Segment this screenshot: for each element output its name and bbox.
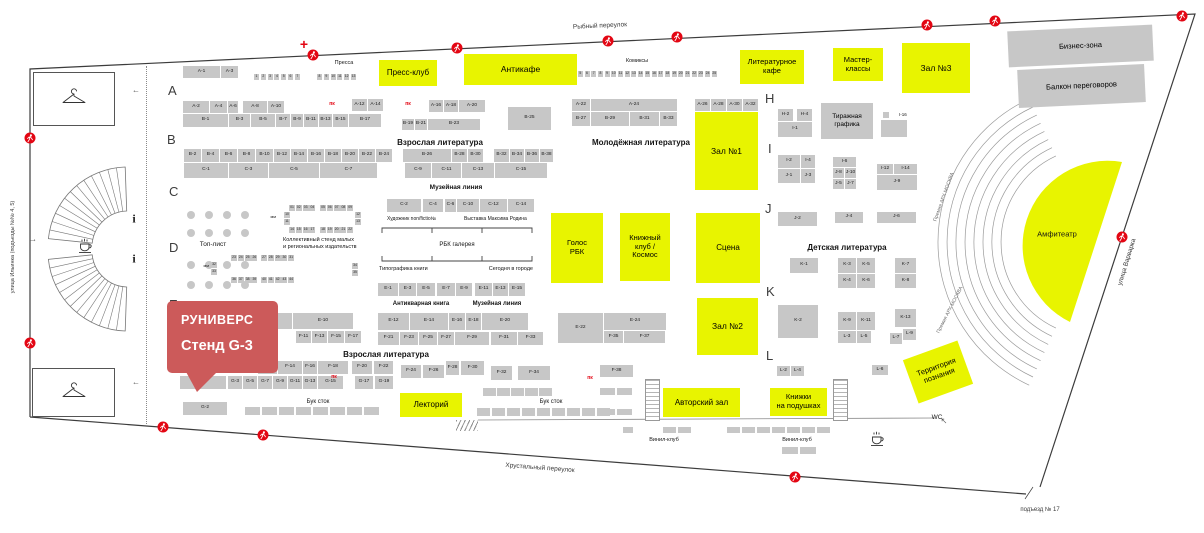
fire-hydrant-label: пк bbox=[587, 375, 593, 381]
amphitheater-seating-arc bbox=[947, 107, 1033, 377]
booth-c-15: C-15 bbox=[495, 163, 547, 178]
section-label: и региональных издательств bbox=[283, 244, 357, 250]
section-label: Комиксы bbox=[626, 58, 648, 64]
comics-stand-18: 18 bbox=[665, 71, 670, 77]
booth-a-8: A-8 bbox=[243, 101, 267, 113]
visitor-path-guide bbox=[146, 66, 147, 424]
booth-c-11: C-11 bbox=[432, 163, 461, 178]
book-stock-shelf bbox=[347, 407, 362, 415]
booth-e-11: E-11 bbox=[475, 283, 492, 296]
booth-h-2: H-2 bbox=[778, 109, 793, 121]
collective-stand-14: 14 bbox=[289, 227, 295, 233]
collective-stand-28: 28 bbox=[268, 255, 274, 261]
book-stock-shelf bbox=[522, 408, 535, 416]
press-stand-8: 8 bbox=[317, 74, 322, 80]
booth-c-13: C-13 bbox=[462, 163, 494, 178]
seating-dot bbox=[223, 229, 231, 237]
booth-b-9: B-9 bbox=[291, 114, 303, 127]
collective-stand-43: 43 bbox=[281, 277, 287, 283]
comics-stand-6: 6 bbox=[585, 71, 590, 77]
emergency-exit-icon bbox=[452, 43, 463, 54]
collective-stand-17: 17 bbox=[309, 227, 315, 233]
zone-author-hall: Авторский зал bbox=[663, 388, 740, 417]
booth-b-11: B-11 bbox=[304, 114, 318, 127]
book-stock-shelf bbox=[279, 407, 294, 415]
booth-c-12: C-12 bbox=[480, 199, 507, 212]
row-letter-c: C bbox=[169, 184, 178, 199]
emergency-exit-icon bbox=[990, 16, 1001, 27]
emergency-exit-icon bbox=[790, 472, 801, 483]
collective-stand-06: 06 bbox=[327, 205, 333, 211]
collective-stand-03: 03 bbox=[303, 205, 309, 211]
book-stock-shelf bbox=[757, 427, 770, 433]
comics-stand-5: 5 bbox=[578, 71, 583, 77]
amphitheater-label: Амфитеатр bbox=[1037, 230, 1077, 239]
comics-stand-20: 20 bbox=[678, 71, 683, 77]
booth-b-32: B-32 bbox=[494, 149, 509, 162]
emergency-exit-icon bbox=[25, 133, 36, 144]
collective-stand-32: 32 bbox=[211, 262, 217, 268]
emergency-exit-icon bbox=[922, 20, 933, 31]
book-stock-shelf bbox=[663, 427, 676, 433]
booth-b-25: B-25 bbox=[508, 107, 551, 130]
section-label: Детская литература bbox=[807, 243, 886, 252]
booth-b-24: B-24 bbox=[376, 149, 392, 162]
escalator bbox=[645, 379, 660, 421]
collective-stand-21: 21 bbox=[340, 227, 346, 233]
booth-b-13: B-13 bbox=[319, 114, 332, 127]
comics-stand-8: 8 bbox=[598, 71, 603, 77]
booth-b-16: B-16 bbox=[308, 149, 324, 162]
booth-b-8: B-8 bbox=[238, 149, 255, 162]
booth-e-14: E-14 bbox=[410, 313, 448, 330]
zone-press-club: Пресс-клуб bbox=[379, 60, 437, 86]
booth-b-36: B-36 bbox=[525, 149, 539, 162]
amphitheater-zone bbox=[1023, 161, 1122, 322]
booth-f-29: F-29 bbox=[455, 332, 489, 345]
booth-l-5: L-5 bbox=[857, 331, 871, 343]
book-stock-shelf bbox=[483, 388, 496, 396]
direction-arrow-icon: → bbox=[29, 235, 37, 244]
booth-f-11: F-11 bbox=[296, 331, 311, 343]
book-stock-shelf bbox=[477, 408, 490, 416]
press-stand-1: 1 bbox=[254, 74, 259, 80]
collective-stand-25: 25 bbox=[245, 255, 251, 261]
booth-e-15: E-15 bbox=[509, 283, 525, 296]
press-stand-2: 2 bbox=[261, 74, 266, 80]
booth-a-6: A-6 bbox=[228, 101, 238, 113]
booth-b-17: B-17 bbox=[349, 114, 381, 127]
booth-f-22: F-22 bbox=[374, 361, 393, 374]
booth-f-26: F-26 bbox=[423, 365, 444, 378]
seating-dot bbox=[187, 211, 195, 219]
booth-g-5: G-5 bbox=[243, 376, 257, 389]
booth-b-15: B-15 bbox=[333, 114, 348, 127]
booth-a-4: A-4 bbox=[210, 101, 227, 113]
booth-j-3: J-3 bbox=[801, 169, 815, 183]
booth-i-12: I-12 bbox=[877, 164, 893, 174]
seating-dot bbox=[205, 281, 213, 289]
collective-stand-36: 36 bbox=[231, 277, 237, 283]
booth-f-33: F-33 bbox=[518, 332, 543, 345]
info-point-icon: i bbox=[132, 212, 135, 227]
zone-hall-2: Зал №2 bbox=[697, 298, 758, 355]
comics-stand-19: 19 bbox=[672, 71, 677, 77]
curved-staircase bbox=[48, 167, 126, 243]
booth-c-5: C-5 bbox=[269, 163, 319, 178]
booth-f-14: F-14 bbox=[278, 361, 302, 374]
booth-l-2: L-2 bbox=[777, 366, 790, 376]
booth-j-6: J-6 bbox=[877, 212, 916, 223]
booth-e-10: E-10 bbox=[293, 313, 353, 329]
booth-e-1: E-1 bbox=[378, 283, 398, 296]
booth-e-13: E-13 bbox=[493, 283, 508, 296]
press-stand-3: 3 bbox=[268, 74, 273, 80]
booth-h-4: H-4 bbox=[797, 109, 812, 121]
press-stand-6: 6 bbox=[288, 74, 293, 80]
booth bbox=[278, 313, 292, 329]
booth-b-6: B-6 bbox=[220, 149, 237, 162]
collective-stand-10: 10 bbox=[284, 212, 290, 218]
row-letter-k: K bbox=[766, 284, 775, 299]
book-stock-shelf bbox=[497, 388, 510, 396]
section-label: Музейная линия bbox=[430, 184, 483, 191]
booth-a-10: A-10 bbox=[268, 101, 284, 113]
highlighted-booth-callout: РУНИВЕРС Стенд G-3 bbox=[167, 301, 278, 373]
hanger-icon bbox=[61, 88, 87, 110]
book-stock-shelf bbox=[600, 388, 615, 395]
booth-b-3: B-3 bbox=[229, 114, 250, 127]
collective-stand-33: 33 bbox=[211, 269, 217, 275]
press-stand-9: 9 bbox=[324, 74, 329, 80]
booth-c-2: C-2 bbox=[387, 199, 421, 212]
booth-a-30: A-30 bbox=[727, 99, 742, 111]
row-letter-i: I bbox=[768, 141, 772, 156]
collective-stand-01: 01 bbox=[289, 205, 295, 211]
book-stock-shelf bbox=[742, 427, 755, 433]
booth-b-31: B-31 bbox=[630, 112, 659, 126]
booth-b-14: B-14 bbox=[291, 149, 307, 162]
section-label: мм bbox=[204, 263, 210, 268]
booth-e-3: E-3 bbox=[399, 283, 416, 296]
booth-b-20: B-20 bbox=[342, 149, 358, 162]
booth-c-6: C-6 bbox=[445, 199, 456, 212]
book-stock-shelf bbox=[617, 388, 632, 395]
collective-stand-40: 40 bbox=[261, 277, 267, 283]
collective-stand-07: 07 bbox=[334, 205, 340, 211]
book-stock-shelf bbox=[245, 407, 260, 415]
zone-hall-3: Зал №3 bbox=[902, 43, 970, 93]
seating-dot bbox=[187, 229, 195, 237]
collective-stand-31: 31 bbox=[288, 255, 294, 261]
booth-f-32: F-32 bbox=[491, 366, 512, 380]
book-stock-shelf bbox=[492, 408, 505, 416]
booth-c-3: C-3 bbox=[229, 163, 268, 178]
book-stock-shelf bbox=[552, 408, 565, 416]
book-stock-shelf bbox=[364, 407, 379, 415]
booth-f-35: F-35 bbox=[604, 331, 623, 343]
seating-dot bbox=[241, 211, 249, 219]
press-stand-7: 7 bbox=[295, 74, 300, 80]
collective-stand-20: 20 bbox=[334, 227, 340, 233]
coffee-cup-icon bbox=[78, 238, 94, 260]
collective-stand-13: 13 bbox=[355, 219, 361, 225]
booth-a-3: A-3 bbox=[221, 66, 238, 78]
zone-book-club-cosmos: Книжный клуб / Космос bbox=[620, 213, 670, 281]
booth-a-12: A-12 bbox=[352, 99, 367, 111]
booth-k-2: K-2 bbox=[778, 305, 818, 338]
book-stock-shelf bbox=[511, 388, 524, 396]
hanger-icon bbox=[61, 382, 87, 404]
booth-c-9: C-9 bbox=[405, 163, 431, 178]
book-stock-shelf bbox=[787, 427, 800, 433]
book-stock-shelf bbox=[772, 427, 785, 433]
direction-arrow-icon: ← bbox=[132, 378, 140, 387]
booth-b-10: B-10 bbox=[256, 149, 273, 162]
emergency-exit-icon bbox=[603, 36, 614, 47]
emergency-exit-icon bbox=[308, 50, 319, 61]
booth-b-26: B-26 bbox=[403, 149, 451, 162]
booth-c-7: C-7 bbox=[320, 163, 377, 178]
booth-a-32: A-32 bbox=[743, 99, 758, 111]
press-stand-5: 5 bbox=[281, 74, 286, 80]
book-stock-shelf bbox=[525, 388, 538, 396]
section-label: мм bbox=[271, 214, 277, 219]
book-stock-shelf bbox=[582, 408, 595, 416]
booth-a-22: A-22 bbox=[572, 99, 590, 111]
collective-stand-34: 34 bbox=[352, 263, 358, 269]
booth-i-6: I-6 bbox=[833, 157, 856, 167]
booth-b-7: B-7 bbox=[276, 114, 290, 127]
section-label: Сегодня в городе bbox=[489, 266, 533, 272]
comics-stand-13: 13 bbox=[631, 71, 636, 77]
booth-g-11: G-11 bbox=[288, 376, 302, 389]
booth-e-7: E-7 bbox=[437, 283, 455, 296]
info-point-icon: i bbox=[132, 252, 135, 267]
booth-k-13: K-13 bbox=[895, 309, 916, 327]
collective-stand-30: 30 bbox=[281, 255, 287, 261]
booth-k-6: K-6 bbox=[857, 274, 875, 288]
first-aid-icon: + bbox=[300, 36, 308, 52]
booth-f-23: F-23 bbox=[400, 332, 418, 345]
booth-f-17: F-17 bbox=[345, 331, 361, 343]
section-label: Винил-клуб bbox=[649, 437, 679, 443]
collective-stand-44: 44 bbox=[288, 277, 294, 283]
comics-stand-22: 22 bbox=[692, 71, 697, 77]
comics-stand-15: 15 bbox=[645, 71, 650, 77]
collective-stand-05: 05 bbox=[320, 205, 326, 211]
booth bbox=[881, 120, 907, 137]
collective-stand-08: 08 bbox=[340, 205, 346, 211]
emergency-exit-icon bbox=[1117, 232, 1128, 243]
book-stock-shelf bbox=[507, 408, 520, 416]
book-stock-shelf bbox=[782, 447, 798, 454]
seating-dot bbox=[205, 229, 213, 237]
zone-stage: Сцена bbox=[696, 213, 760, 283]
booth-b-27: B-27 bbox=[572, 112, 590, 126]
collective-stand-16: 16 bbox=[303, 227, 309, 233]
booth-b-21: B-21 bbox=[415, 119, 427, 130]
booth-g-17: G-17 bbox=[355, 376, 373, 389]
booth-e-5: E-5 bbox=[417, 283, 435, 296]
section-label: Бук сток bbox=[307, 399, 330, 405]
booth-l-9: L-9 bbox=[903, 329, 916, 340]
booth-a-26: A-26 bbox=[695, 99, 710, 111]
booth-e-9: E-9 bbox=[456, 283, 472, 296]
collective-stand-09: 09 bbox=[347, 205, 353, 211]
booth-c-14: C-14 bbox=[508, 199, 534, 212]
press-stand-4: 4 bbox=[274, 74, 279, 80]
section-label: РБК галерея bbox=[439, 242, 474, 248]
comics-stand-16: 16 bbox=[652, 71, 657, 77]
booth-i-1: I-1 bbox=[778, 122, 812, 137]
press-stand-12: 12 bbox=[344, 74, 349, 80]
booth-g-13: G-13 bbox=[303, 376, 317, 389]
fire-hydrant-label: пк bbox=[331, 374, 337, 380]
curved-staircase bbox=[48, 255, 126, 331]
booth-k-7: K-7 bbox=[895, 258, 916, 273]
booth-k-11: K-11 bbox=[857, 312, 875, 330]
collective-stand-37: 37 bbox=[238, 277, 244, 283]
callout-pointer bbox=[183, 370, 223, 394]
booth-l-4: L-4 bbox=[791, 366, 804, 376]
row-letter-d: D bbox=[169, 240, 178, 255]
cloakroom bbox=[32, 368, 115, 417]
booth-j-4: J-4 bbox=[835, 212, 863, 223]
booth-l-6: L-6 bbox=[872, 365, 888, 375]
collective-stand-12: 12 bbox=[355, 212, 361, 218]
section-label: Бук сток bbox=[540, 399, 563, 405]
booth-i-4: I-4 bbox=[801, 155, 815, 168]
booth-f-24: F-24 bbox=[401, 365, 421, 378]
booth-b-2: B-2 bbox=[184, 149, 201, 162]
booth-g-19: G-19 bbox=[375, 376, 393, 389]
book-stock-shelf bbox=[727, 427, 740, 433]
zone-anticafe: Антикафе bbox=[464, 54, 577, 85]
booth-a-2: A-2 bbox=[183, 101, 209, 113]
booth-f-15: F-15 bbox=[328, 331, 344, 343]
book-stock-shelf bbox=[802, 427, 815, 433]
booth-k-8: K-8 bbox=[895, 274, 916, 288]
section-label: Пресса bbox=[335, 60, 354, 66]
booth-f-34: F-34 bbox=[518, 366, 550, 380]
comics-stand-7: 7 bbox=[591, 71, 596, 77]
collective-stand-42: 42 bbox=[275, 277, 281, 283]
cloakroom bbox=[33, 72, 115, 126]
section-label: Выставка Максима Родина bbox=[464, 216, 527, 222]
seating-dot bbox=[205, 211, 213, 219]
booth-a-24: A-24 bbox=[591, 99, 677, 111]
booth-g-7: G-7 bbox=[258, 376, 272, 389]
coffee-cup-icon bbox=[870, 431, 886, 453]
booth-b-5: B-5 bbox=[251, 114, 275, 127]
section-label: Музейная линия bbox=[473, 301, 522, 307]
comics-stand-12: 12 bbox=[625, 71, 630, 77]
booth-e-18: E-18 bbox=[466, 313, 481, 330]
section-label: Топ-лист bbox=[200, 241, 226, 248]
row-letter-j: J bbox=[765, 201, 772, 216]
booth-a-18: A-18 bbox=[444, 100, 458, 112]
booth-e-20: E-20 bbox=[482, 313, 528, 330]
booth-c-1: C-1 bbox=[184, 163, 228, 178]
booth-e-12: E-12 bbox=[378, 313, 409, 330]
booth-i-2: I-2 bbox=[778, 155, 800, 168]
booth-g-3: G-3 bbox=[228, 376, 242, 389]
comics-stand-21: 21 bbox=[685, 71, 690, 77]
seating-dot bbox=[241, 261, 249, 269]
press-stand-10: 10 bbox=[331, 74, 336, 80]
street-label-street-ilyinka: улица Ильинка (подъезды №№ 4, 5) bbox=[10, 201, 16, 294]
section-label: Антикварная книга bbox=[393, 301, 449, 307]
comics-stand-14: 14 bbox=[638, 71, 643, 77]
fire-hydrant-label: пк bbox=[329, 101, 335, 107]
booth-f-31: F-31 bbox=[491, 332, 517, 345]
book-stock-shelf bbox=[567, 408, 580, 416]
collective-stand-15: 15 bbox=[296, 227, 302, 233]
zone-master-classes: Мастер- классы bbox=[833, 48, 883, 81]
zone-rbc-voice: Голос РБК bbox=[551, 213, 603, 283]
booth-f-16: F-16 bbox=[303, 361, 317, 374]
row-letter-b: B bbox=[167, 132, 176, 147]
zone-print-graphics: Тиражная графика bbox=[821, 103, 873, 139]
booth-f-18: F-18 bbox=[318, 361, 348, 374]
booth-b-23: B-23 bbox=[428, 119, 480, 130]
booth-f-38: F-38 bbox=[600, 365, 633, 377]
booth-j-7: J-7 bbox=[845, 179, 856, 189]
collective-stand-39: 39 bbox=[251, 277, 257, 283]
direction-arrow-icon: ← bbox=[132, 86, 140, 95]
booth-k-9: K-9 bbox=[838, 312, 856, 330]
booth-a-20: A-20 bbox=[459, 100, 485, 112]
booth-b-4: B-4 bbox=[202, 149, 219, 162]
seating-dot bbox=[223, 261, 231, 269]
booth-a-16: A-16 bbox=[429, 100, 443, 112]
comics-stand-23: 23 bbox=[698, 71, 703, 77]
booth-a-28: A-28 bbox=[711, 99, 726, 111]
row-letter-l: L bbox=[766, 348, 773, 363]
booth-b-34: B-34 bbox=[510, 149, 524, 162]
section-label: Молодёжная литература bbox=[592, 138, 690, 147]
booth-f-27: F-27 bbox=[438, 332, 454, 345]
booth-j-5: J-5 bbox=[833, 179, 844, 189]
book-stock-shelf bbox=[817, 427, 830, 433]
collective-stand-41: 41 bbox=[268, 277, 274, 283]
zone-books-on-pillows: Книжки на подушках bbox=[770, 388, 827, 416]
booth-k-5: K-5 bbox=[857, 258, 875, 273]
collective-stand-18: 18 bbox=[320, 227, 326, 233]
booth-f-37: F-37 bbox=[624, 331, 665, 343]
collective-stand-29: 29 bbox=[275, 255, 281, 261]
book-stock-shelf bbox=[537, 408, 550, 416]
booth-f-13: F-13 bbox=[312, 331, 327, 343]
seating-dot bbox=[187, 281, 195, 289]
section-label: Винил-клуб bbox=[782, 437, 812, 443]
booth-f-20: F-20 bbox=[352, 361, 372, 374]
booth-c-4: C-4 bbox=[423, 199, 443, 212]
seating-dot bbox=[187, 261, 195, 269]
collective-stand-26: 26 bbox=[251, 255, 257, 261]
booth-b-30: B-30 bbox=[468, 149, 483, 162]
zone-lectorium: Лекторий bbox=[400, 393, 462, 417]
booth-b-19: B-19 bbox=[402, 119, 414, 130]
booth-j-10: J-10 bbox=[845, 168, 856, 178]
booth-c-10: C-10 bbox=[457, 199, 479, 212]
section-label: Типографика книги bbox=[379, 266, 428, 272]
collective-stand-35: 35 bbox=[352, 270, 358, 276]
booth-j-9: J-9 bbox=[877, 175, 917, 190]
booth-l-3: L-3 bbox=[838, 331, 856, 343]
floor-plan-map: A-1A-3A-2A-4A-6A-8A-10A-12A-14A-16A-18A-… bbox=[0, 0, 1204, 533]
